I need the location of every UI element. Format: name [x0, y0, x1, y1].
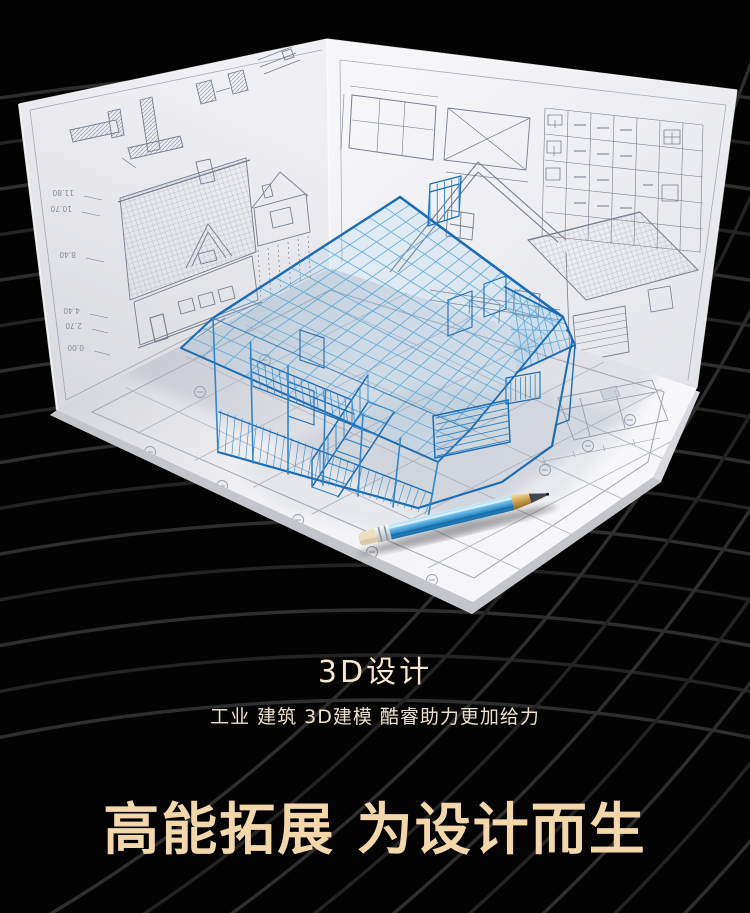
slogan-headline: 高能拓展 为设计而生 — [0, 785, 750, 866]
svg-text:11.80: 11.80 — [52, 188, 74, 197]
svg-text:0.00: 0.00 — [67, 343, 84, 352]
svg-text:10.70: 10.70 — [50, 204, 72, 213]
blueprint-3d-scene-illustration: 11.80 10.70 8.40 4.40 2.70 0.00 — [0, 0, 750, 913]
svg-text:8.40: 8.40 — [59, 250, 76, 259]
product-subtitle: 工业 建筑 3D建模 酷睿助力更加给力 — [0, 702, 750, 729]
product-title: 3D设计 — [0, 647, 750, 691]
promo-banner: 11.80 10.70 8.40 4.40 2.70 0.00 — [0, 0, 750, 913]
svg-text:4.40: 4.40 — [63, 306, 80, 315]
svg-text:2.70: 2.70 — [65, 321, 82, 330]
